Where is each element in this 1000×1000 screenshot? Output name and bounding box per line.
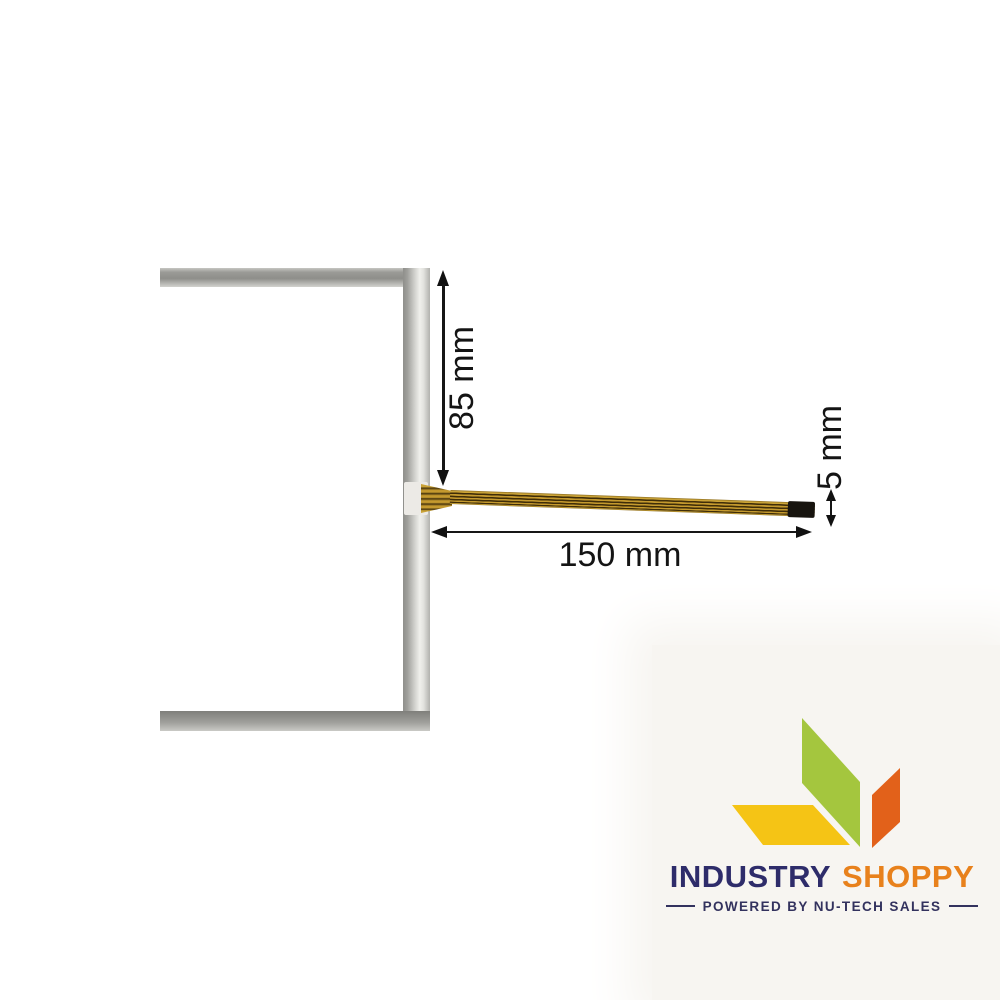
brand-tagline: POWERED BY NU-TECH SALES <box>652 896 992 916</box>
brand-name: INDUSTRYSHOPPY <box>652 860 992 894</box>
dim-85mm-arrowhead-down-icon <box>437 470 449 486</box>
cable-tip <box>788 501 816 518</box>
dim-150mm-label: 150 mm <box>545 537 695 573</box>
tagline-dash-right <box>949 905 978 907</box>
panel-frame-top-edge <box>160 268 430 287</box>
panel-frame-bottom-edge <box>160 711 430 731</box>
cable-connector <box>421 484 452 513</box>
tagline-text: POWERED BY NU-TECH SALES <box>703 899 942 914</box>
dim-150mm-arrowhead-right-icon <box>796 526 812 538</box>
brand-name-primary: INDUSTRY <box>670 859 831 894</box>
tagline-dash-left <box>666 905 695 907</box>
flex-ribbon-cable <box>450 490 815 517</box>
dim-150mm-line <box>445 531 798 534</box>
dim-5mm-arrowhead-down-icon <box>826 515 836 527</box>
dim-5mm-label: 5 mm <box>812 410 848 490</box>
brand-name-secondary: SHOPPY <box>842 859 974 894</box>
dim-85mm-label: 85 mm <box>444 323 480 433</box>
product-image: 85 mm 150 mm 5 mm INDUSTRYSHOPPY POWERED… <box>0 0 1000 1000</box>
